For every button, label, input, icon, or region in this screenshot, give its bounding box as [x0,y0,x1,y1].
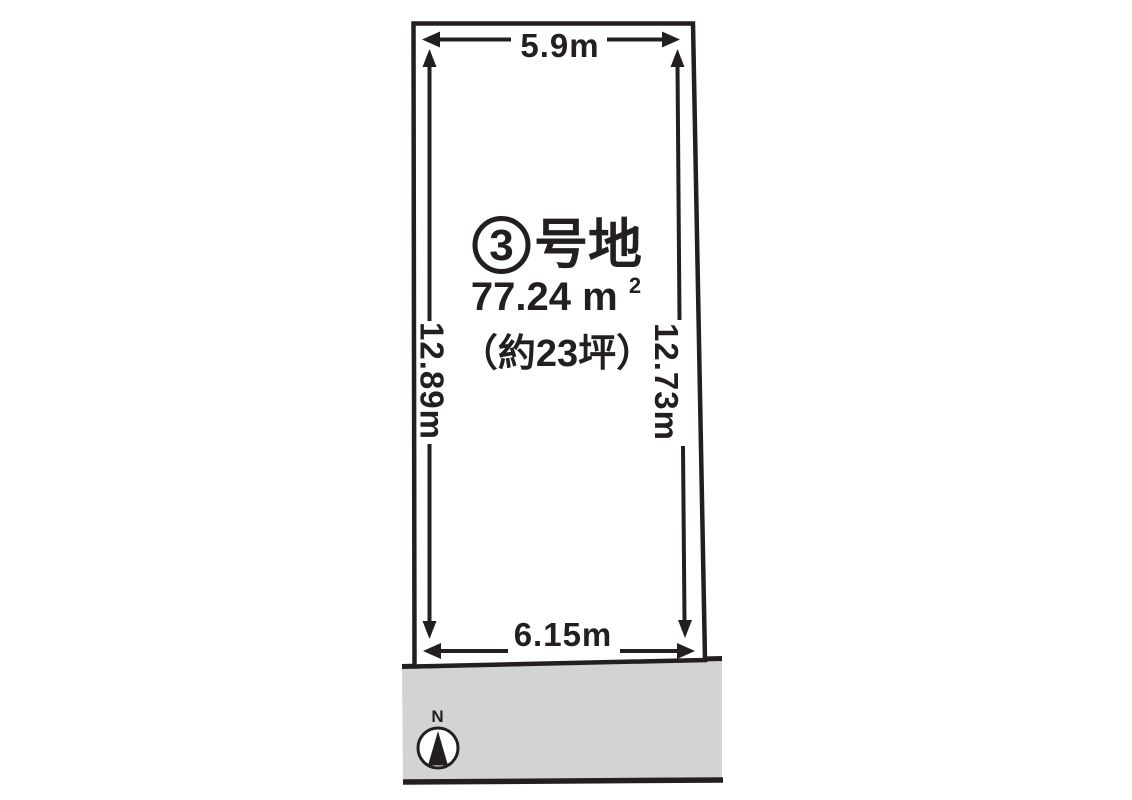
area-sqm-superscript: 2 [629,273,641,298]
bottom-dimension-label: 6.15m [514,616,613,653]
left-dimension-label: 12.89m [414,322,451,440]
area-sqm-unit: m [582,275,618,319]
plot-number: 3 [489,221,513,270]
land-plot-diagram-page: 5.9m 12.89m 12.73m 6.15m 3 号地 77.24 m 2 [0,0,1132,800]
area-sqm-value: 77.24 [471,275,572,319]
compass-north-label: N [431,707,443,726]
land-plot-diagram: 5.9m 12.89m 12.73m 6.15m 3 号地 77.24 m 2 [0,0,1132,800]
right-dimension-line-lower [683,446,685,620]
area-tsubo-label: （約23坪） [460,333,654,375]
plot-name-label: 号地 [534,215,642,275]
area-sqm-label: 77.24 m 2 [471,273,641,319]
road-bottom-edge-line [403,780,723,782]
top-dimension-label: 5.9m [520,27,599,64]
right-dimension-line-upper [678,65,680,320]
